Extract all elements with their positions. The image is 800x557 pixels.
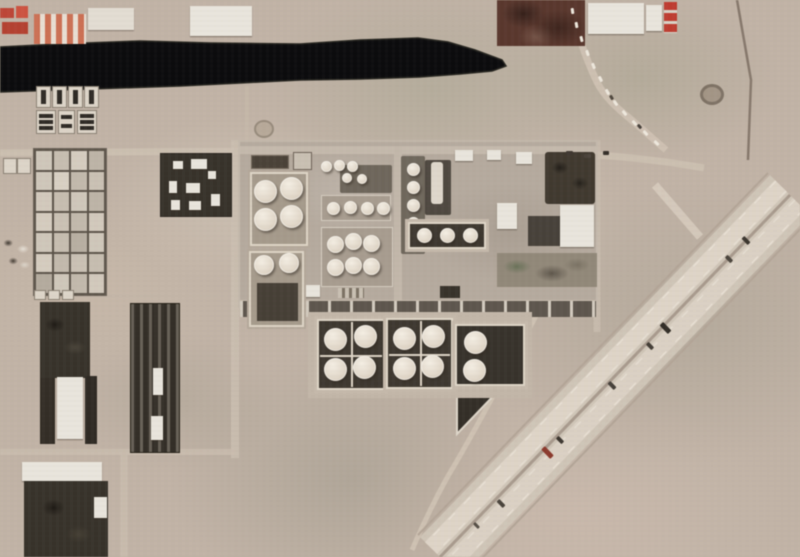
satellite-image bbox=[0, 0, 800, 557]
photo-layers bbox=[0, 0, 800, 557]
photo-grain bbox=[0, 0, 800, 557]
